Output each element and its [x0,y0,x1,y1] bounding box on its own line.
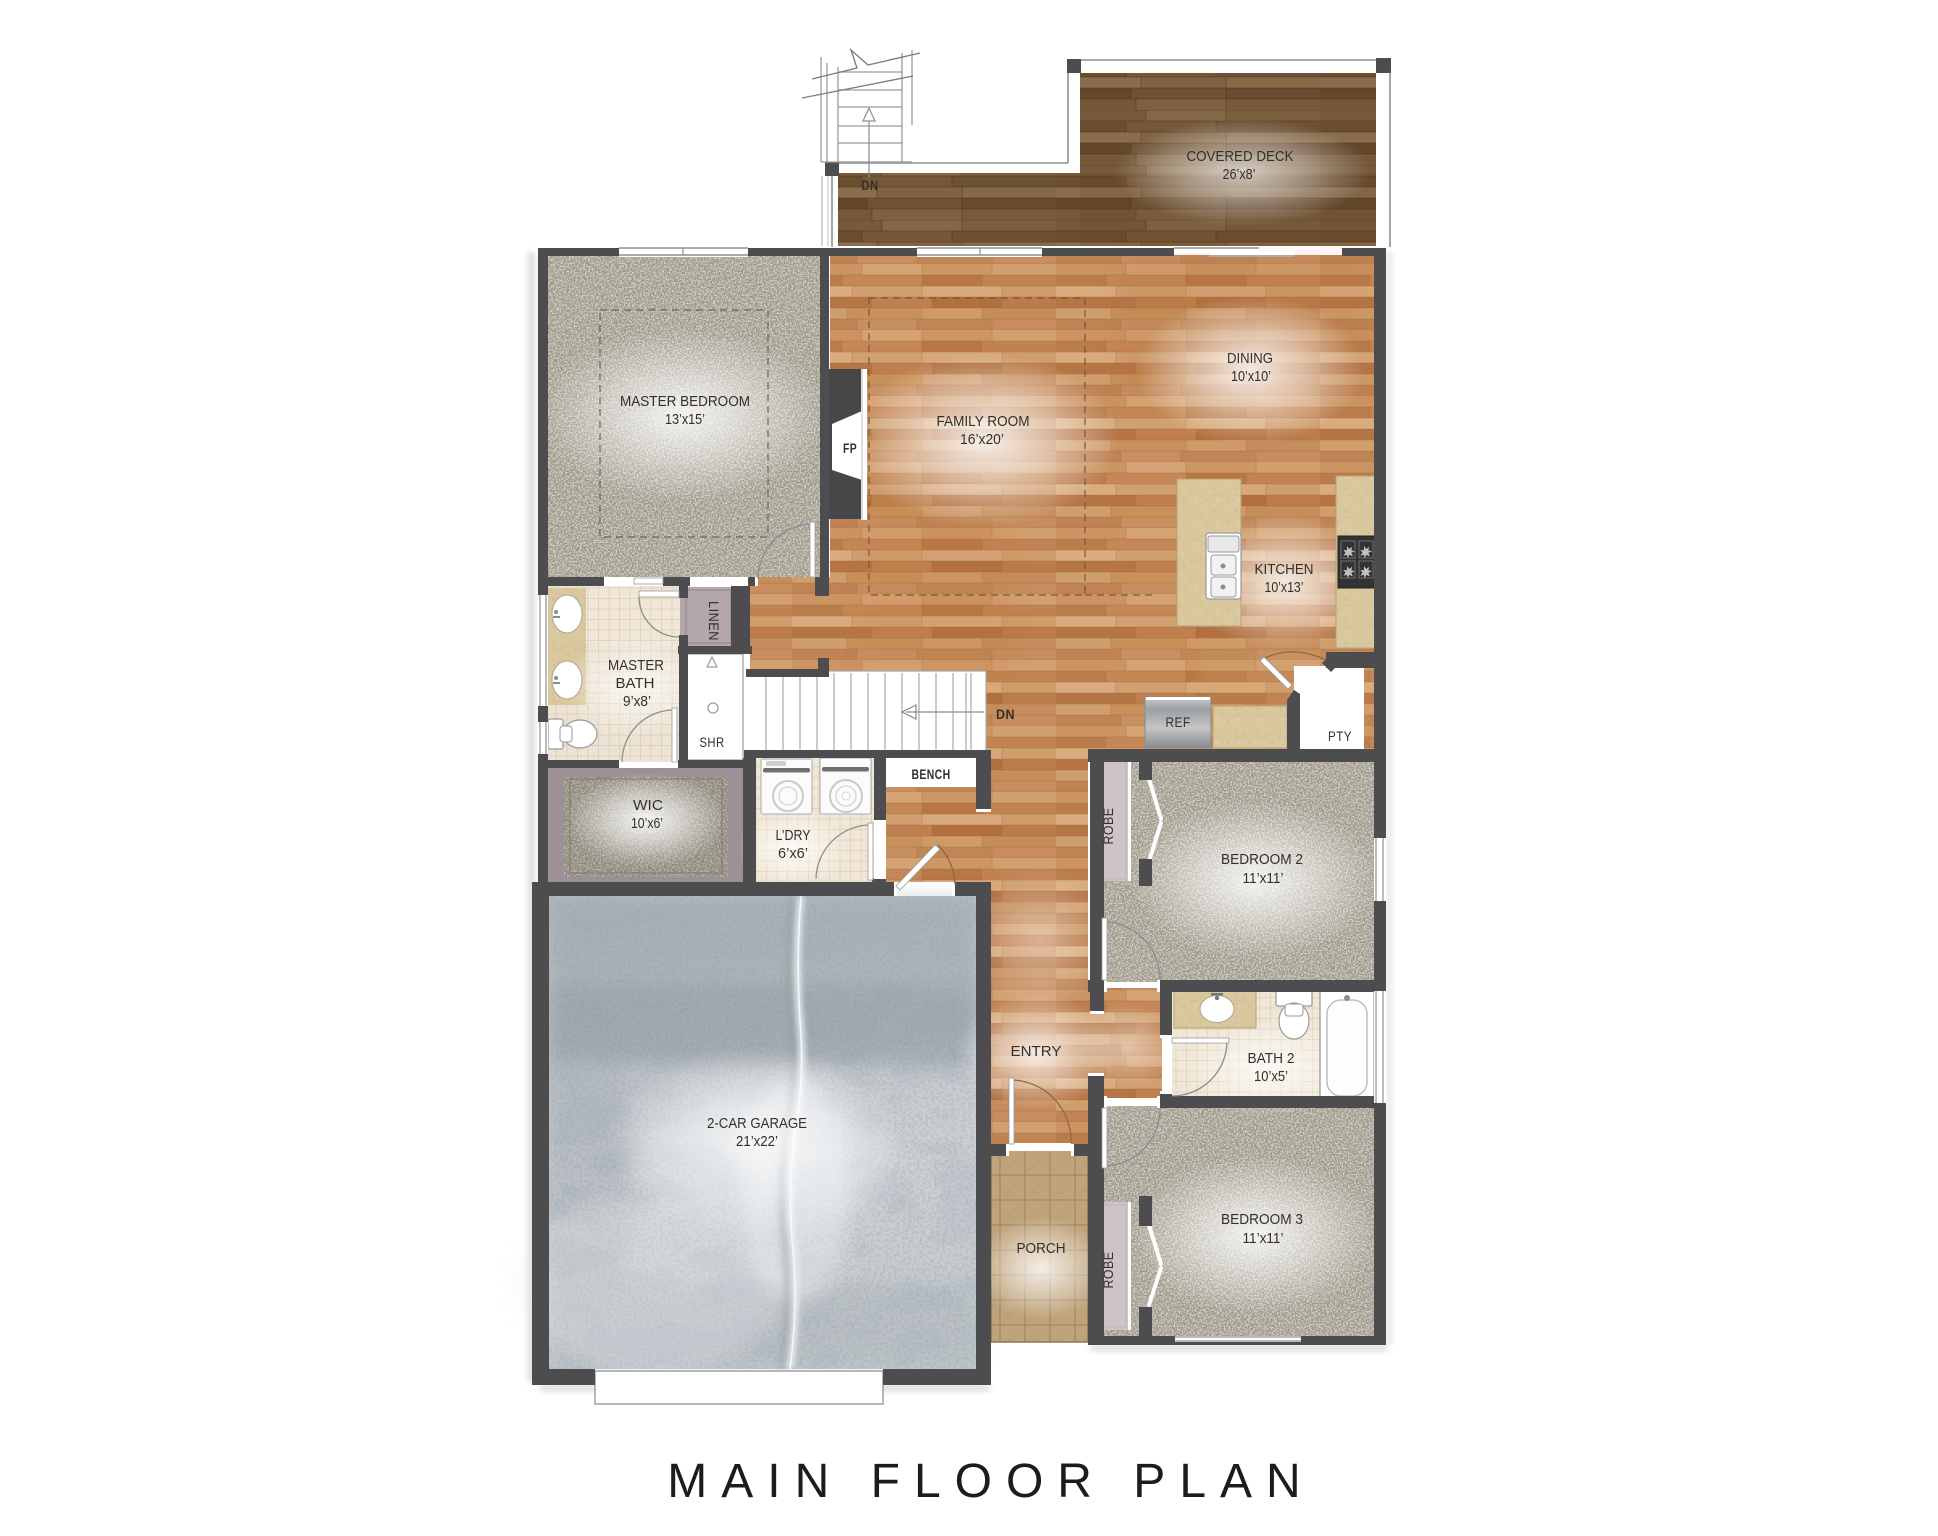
svg-text:ENTRY: ENTRY [1011,1043,1062,1060]
svg-text:13’x15’: 13’x15’ [665,411,705,428]
svg-text:FP: FP [843,441,857,456]
svg-text:DN: DN [996,707,1015,722]
svg-text:DINING: DINING [1227,350,1273,367]
svg-text:BEDROOM 3: BEDROOM 3 [1221,1211,1303,1228]
svg-text:COVERED DECK: COVERED DECK [1187,148,1294,165]
svg-text:9’x8’: 9’x8’ [623,693,651,710]
svg-text:21’x22’: 21’x22’ [736,1133,778,1150]
svg-text:SHR: SHR [700,735,725,750]
svg-text:BEDROOM 2: BEDROOM 2 [1221,851,1303,868]
svg-text:11’x11’: 11’x11’ [1243,870,1284,887]
svg-text:6’x6’: 6’x6’ [778,845,808,862]
svg-text:WIC: WIC [633,797,663,814]
svg-text:DN: DN [862,178,879,193]
svg-text:26’x8’: 26’x8’ [1223,166,1256,183]
svg-text:16’x20’: 16’x20’ [960,431,1004,448]
svg-text:BATH: BATH [616,675,655,692]
svg-text:2-CAR GARAGE: 2-CAR GARAGE [707,1115,807,1132]
svg-text:MASTER: MASTER [608,657,664,674]
svg-text:10’x13’: 10’x13’ [1265,579,1304,596]
svg-text:ROBE: ROBE [1101,808,1116,845]
svg-text:PTY: PTY [1328,729,1352,744]
svg-text:FAMILY ROOM: FAMILY ROOM [937,413,1030,430]
svg-text:10’x6’: 10’x6’ [631,815,663,832]
svg-text:MASTER BEDROOM: MASTER BEDROOM [620,393,750,410]
svg-text:10’x10’: 10’x10’ [1231,368,1271,385]
svg-text:BENCH: BENCH [912,767,951,782]
svg-text:PORCH: PORCH [1017,1240,1066,1257]
svg-text:KITCHEN: KITCHEN [1255,561,1314,578]
svg-text:L’DRY: L’DRY [776,827,811,844]
svg-text:BATH 2: BATH 2 [1248,1050,1295,1067]
svg-text:MAIN FLOOR PLAN: MAIN FLOOR PLAN [667,1455,1314,1508]
svg-text:LINEN: LINEN [706,601,721,641]
svg-text:REF: REF [1166,715,1191,730]
svg-text:10’x5’: 10’x5’ [1254,1068,1288,1085]
svg-text:ROBE: ROBE [1101,1252,1116,1289]
svg-text:11’x11’: 11’x11’ [1243,1230,1284,1247]
